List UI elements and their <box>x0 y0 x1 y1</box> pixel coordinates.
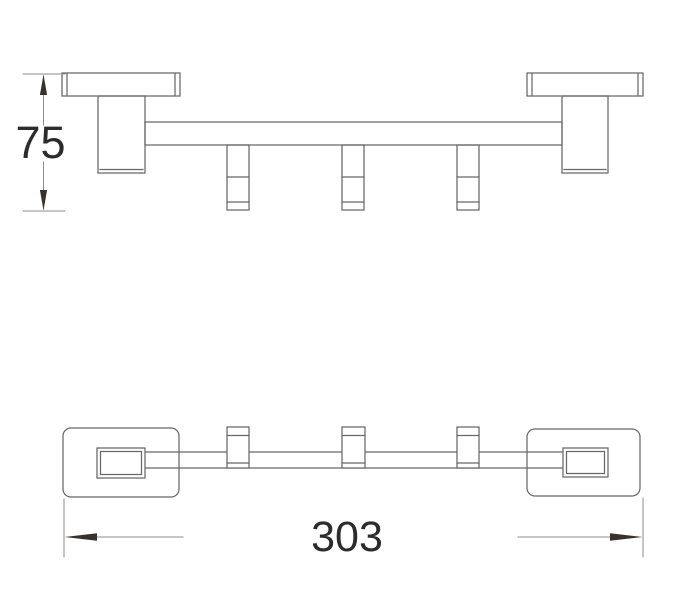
right-post-plan-outer <box>563 448 608 477</box>
left-post-plan-outer <box>97 448 145 478</box>
hook-1-plan-body <box>227 427 249 468</box>
rail-bar-side <box>145 122 562 145</box>
left-mount-post <box>98 96 145 173</box>
height-dimension: 75 <box>15 74 65 211</box>
height-dimension-label: 75 <box>15 117 65 168</box>
technical-drawing-canvas: 75 <box>0 0 684 600</box>
right-post-plan <box>563 448 608 477</box>
hook-3-side <box>457 145 479 210</box>
hook-2-plan-body <box>342 427 365 468</box>
hook-3-plan-body <box>457 427 479 468</box>
drawing-svg: 75 <box>0 0 684 600</box>
hook-2-plan <box>342 427 365 468</box>
plan-view: 303 <box>63 427 643 561</box>
side-elevation-view: 75 <box>15 73 643 211</box>
height-arrow-up-icon <box>40 75 47 96</box>
width-arrow-left-icon <box>65 533 98 540</box>
hook-2-side <box>342 145 364 210</box>
hook-1-side <box>227 145 249 210</box>
right-mount-cap <box>527 73 643 96</box>
left-wall-mount <box>62 73 180 173</box>
height-arrow-down-icon <box>40 190 47 211</box>
width-dimension-label: 303 <box>311 513 383 561</box>
left-post-plan <box>97 448 145 478</box>
hook-1-plan <box>227 427 249 468</box>
right-wall-mount <box>527 73 643 173</box>
width-arrow-right-icon <box>610 533 643 540</box>
hook-3-plan <box>457 427 479 468</box>
left-mount-cap <box>62 73 180 96</box>
right-mount-post <box>562 96 608 173</box>
width-dimension: 303 <box>64 498 643 561</box>
